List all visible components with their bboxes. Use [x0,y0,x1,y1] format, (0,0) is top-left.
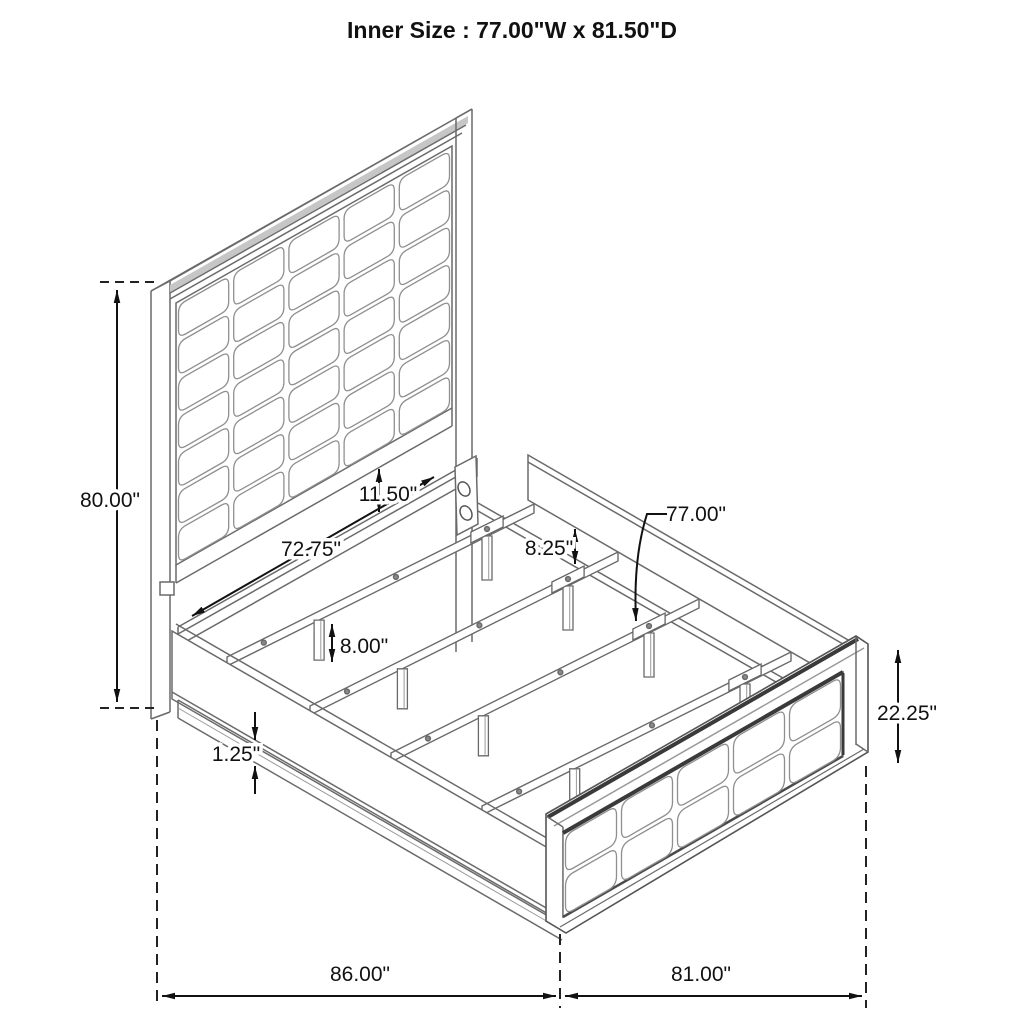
screw-hole [485,527,490,532]
headboard-right-post [456,109,472,652]
slat-support-leg [644,633,654,677]
slat-support-leg [314,620,324,660]
screw-hole [558,670,563,675]
dim-label-overall-depth: 86.00" [330,963,390,986]
screw-hole [566,577,571,582]
slat-support-leg [563,586,573,630]
dim-label-overall-width: 81.00" [671,963,731,986]
right-side-rail-lip [528,462,862,655]
drawing-title: Inner Size : 77.00"W x 81.50"D [347,17,677,43]
screw-hole [517,789,522,794]
dimension-drawing-page: Inner Size : 77.00"W x 81.50"D [0,0,1024,1024]
screw-hole [426,736,431,741]
left-side-rail [172,631,548,916]
screw-hole [477,623,482,628]
dim-label-footboard-height: 22.25" [877,702,937,725]
dim-label-lip-thickness: 1.25" [212,743,260,766]
slat-support-leg [482,536,492,580]
dim-label-headboard-height: 80.00" [80,489,140,512]
slat-support-leg [478,716,488,756]
screw-hole [394,575,399,580]
headboard-left-post [151,281,170,719]
bed-dimension-drawing: Inner Size : 77.00"W x 81.50"D [0,0,1024,1024]
screw-hole [261,640,266,645]
screw-hole [647,624,652,629]
dim-label-slat-frame-width: 72.75" [281,538,341,561]
dim-label-leg-height: 8.00" [340,635,388,658]
screw-hole [650,723,655,728]
headboard-rail-bracket-tab [160,582,174,595]
headboard [151,109,472,719]
footboard [546,636,868,933]
dim-label-rail-above-slats: 8.25" [525,537,573,560]
slat-support-leg [397,669,407,709]
bottom-lip-rail-inner [178,708,562,930]
screw-hole [743,675,748,680]
dim-label-headboard-clearance: 11.50" [359,483,417,506]
screw-hole [345,689,350,694]
dim-label-slat-length: 77.00" [666,503,726,526]
